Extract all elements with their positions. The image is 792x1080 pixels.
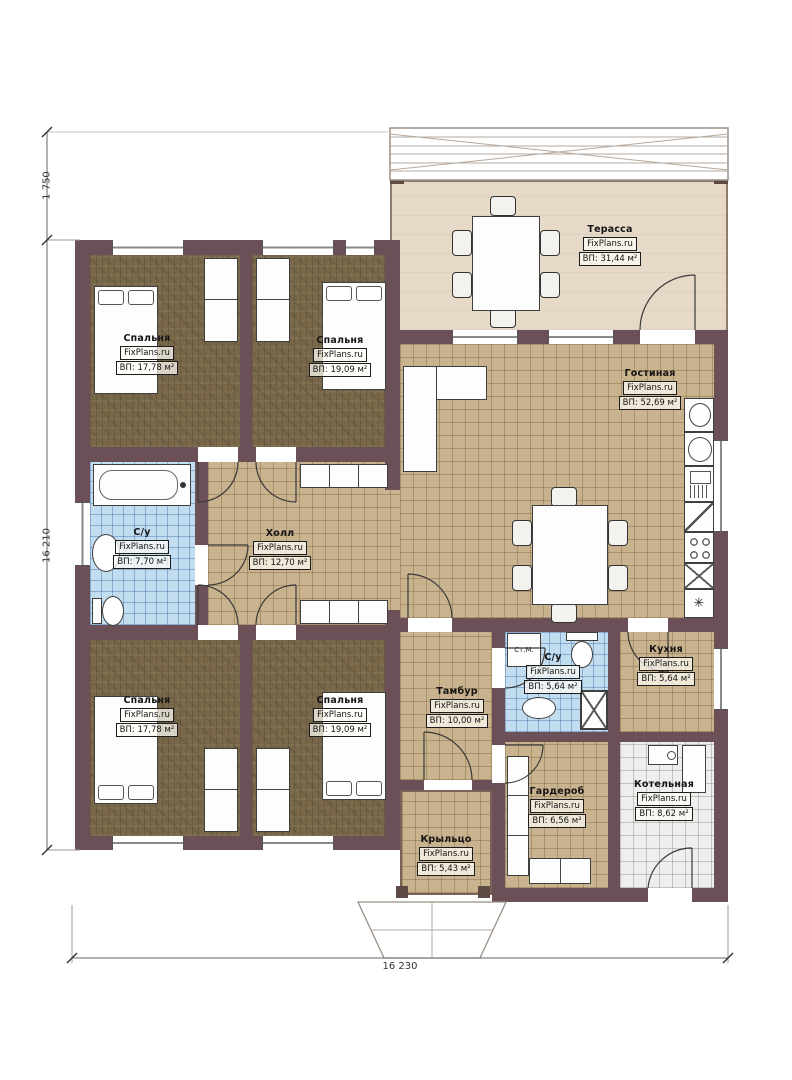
area-box: ВП: 6,56 м² [528,814,585,828]
room-label-kitchen: Кухня FixPlans.ru ВП: 5,64 м² [628,644,704,686]
terrace-floor [390,180,728,330]
window-bath-main [75,502,90,566]
closet [256,748,290,832]
room-name: Котельная [634,779,694,790]
bathtub-basin [99,470,178,500]
room-name: Гостиная [624,368,675,379]
closet [204,258,238,342]
floor-plan-canvas: ✳ Ст.М. Терасса FixPlans.ru ВП: 31,44 м²… [0,0,792,1080]
area-box: ВП: 7,70 м² [113,555,170,569]
porch-roof-hatch [358,902,506,958]
area-box: ВП: 8,62 м² [635,807,692,821]
door-gap-bedroom-bl [198,625,238,640]
bed-pillow [356,286,382,301]
chair [512,520,532,546]
room-label-bath-main: С/у FixPlans.ru ВП: 7,70 м² [104,527,180,569]
door-gap-bath-main [195,545,208,585]
brand-box: FixPlans.ru [313,708,367,722]
room-name: Спальня [317,695,364,706]
area-box: ВП: 5,64 м² [637,672,694,686]
brand-box: FixPlans.ru [120,708,174,722]
chair [540,230,560,256]
brand-box: FixPlans.ru [526,665,580,679]
chair [490,308,516,328]
porch-post-left [396,886,408,898]
dimension-top-left: 1 750 [42,156,53,216]
brand-box: FixPlans.ru [419,847,473,861]
wall-bath-main-right [195,462,208,625]
brand-box: FixPlans.ru [253,541,307,555]
kitchen-sink-cabinet [684,398,714,432]
closet [256,258,290,342]
area-box: ВП: 10,00 м² [426,714,489,728]
boiler-dial [667,751,676,760]
corner-cabinet [684,502,714,532]
terrace-table [472,216,540,311]
bed-pillow [356,781,382,796]
brand-box: FixPlans.ru [313,348,367,362]
area-box: ВП: 12,70 м² [249,556,312,570]
area-box: ВП: 52,69 м² [619,396,682,410]
door-gap-bedroom-tl [198,447,238,462]
bed-pillow [128,290,154,305]
terrace-post-left [390,170,404,184]
cabinet [684,563,714,589]
stove [684,532,714,563]
bed-pillow [98,290,124,305]
wall-bottom-right [492,888,728,902]
chair [540,272,560,298]
hall-cabinet [300,464,388,488]
kitchen-sink-cabinet [684,432,714,466]
oven-grill [690,485,710,498]
door-gap-terrace [640,330,695,344]
room-name: Гардероб [530,786,585,797]
chair [452,272,472,298]
wall-hall-bottom [90,625,400,640]
room-label-bedroom-tr: Спальня FixPlans.ru ВП: 19,09 м² [302,335,378,377]
brand-box: FixPlans.ru [623,381,677,395]
bed-pillow [98,785,124,800]
room-name: С/у [133,527,150,538]
door-gap-bedroom-br [256,625,296,640]
door-gap-bedroom-tr [256,447,296,462]
vent-icon: ✳ [684,589,714,618]
wall-bedrooms-bottom-divider [240,640,252,836]
terrace-post-right [714,170,728,184]
chair [551,487,577,507]
door-gap-bath-small [492,648,505,688]
room-label-tambour: Тамбур FixPlans.ru ВП: 10,00 м² [419,686,495,728]
closet [204,748,238,832]
area-box: ВП: 17,78 м² [116,361,179,375]
room-name: Спальня [124,333,171,344]
dining-table [532,505,608,605]
door-gap-tambour-living [408,618,452,632]
room-label-bedroom-tl: Спальня FixPlans.ru ВП: 17,78 м² [109,333,185,375]
bed-pillow [326,286,352,301]
dimension-bottom: 16 230 [360,961,440,972]
wall-hall-top [90,447,400,462]
brand-box: FixPlans.ru [530,799,584,813]
chair [608,520,628,546]
area-box: ВП: 5,64 м² [524,680,581,694]
room-label-bath-small: С/у FixPlans.ru ВП: 5,64 м² [515,652,591,694]
brand-box: FixPlans.ru [430,699,484,713]
room-name: Холл [266,528,295,539]
area-box: ВП: 5,43 м² [417,862,474,876]
oven [684,466,714,502]
area-box: ВП: 17,78 м² [116,723,179,737]
wall-bedrooms-top-divider [240,255,252,447]
door-gap-boiler-exit [648,888,692,902]
sink-bowl [689,403,711,427]
bed-pillow [128,785,154,800]
window-kitchen [714,648,728,710]
door-gap-wardrobe [492,745,505,783]
sink [522,697,556,719]
wall-wardrobe-boiler-divider [608,742,620,888]
room-name: Кухня [649,644,683,655]
brand-box: FixPlans.ru [115,540,169,554]
room-name: Крыльцо [420,834,471,845]
window-living-terrace-2 [548,330,614,344]
area-box: ВП: 19,09 м² [309,723,372,737]
bed-pillow [326,781,352,796]
terrace-roof-hatch [390,128,728,180]
window-living-right [714,440,728,532]
chair [551,603,577,623]
area-box: ВП: 31,44 м² [579,252,642,266]
wardrobe-shelves [529,858,591,884]
chair [512,565,532,591]
chair [608,565,628,591]
brand-box: FixPlans.ru [583,237,637,251]
room-name: Спальня [124,695,171,706]
door-gap-kitchen [628,618,668,632]
wall-right [714,330,728,902]
window-bedroom-tl [112,240,184,255]
wall-bath-small-right [608,632,620,742]
window-bedroom-br [262,836,334,850]
room-name: Терасса [587,224,632,235]
sink-bowl [688,437,712,462]
room-label-wardrobe: Гардероб FixPlans.ru ВП: 6,56 м² [519,786,595,828]
brand-box: FixPlans.ru [639,657,693,671]
toilet [102,596,124,626]
door-gap-entry [424,780,472,790]
oven-panel [690,471,711,484]
chair [490,196,516,216]
wall-mid-lower [385,610,400,850]
room-label-bedroom-br: Спальня FixPlans.ru ВП: 19,09 м² [302,695,378,737]
window-bedroom-bl [112,836,184,850]
room-name: Спальня [317,335,364,346]
room-label-terrace: Терасса FixPlans.ru ВП: 31,44 м² [572,224,648,266]
shower [580,690,608,730]
dimension-left: 16 210 [42,516,53,576]
bathtub [93,464,191,506]
chair [452,230,472,256]
area-box: ВП: 19,09 м² [309,363,372,377]
window-top-small [345,240,375,255]
porch-post-right [478,886,490,898]
room-label-bedroom-bl: Спальня FixPlans.ru ВП: 17,78 м² [109,695,185,737]
sofa [403,366,437,472]
room-name: С/у [544,652,561,663]
room-label-porch: Крыльцо FixPlans.ru ВП: 5,43 м² [408,834,484,876]
toilet-tank [92,598,102,624]
room-label-hall: Холл FixPlans.ru ВП: 12,70 м² [242,528,318,570]
brand-box: FixPlans.ru [637,792,691,806]
room-label-living: Гостиная FixPlans.ru ВП: 52,69 м² [612,368,688,410]
boiler-unit [648,745,678,765]
room-name: Тамбур [436,686,477,697]
window-bedroom-tr [262,240,334,255]
wall-service-horizontal [492,732,728,742]
hall-cabinet [300,600,388,624]
window-living-terrace-1 [452,330,518,344]
brand-box: FixPlans.ru [120,346,174,360]
room-label-boiler: Котельная FixPlans.ru ВП: 8,62 м² [626,779,702,821]
bathtub-tap [180,482,186,488]
toilet-tank [566,632,598,641]
